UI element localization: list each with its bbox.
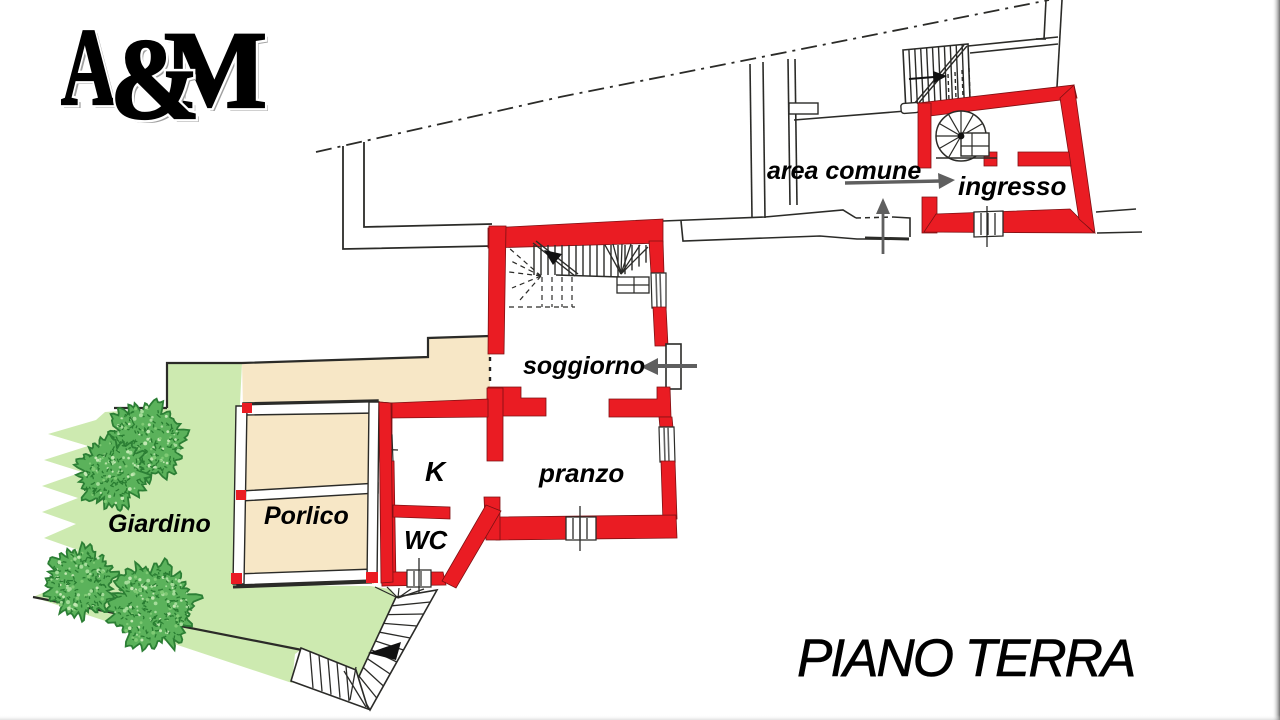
svg-text:K: K — [425, 456, 447, 487]
svg-text:PIANO TERRA: PIANO TERRA — [797, 629, 1134, 688]
svg-text:area comune: area comune — [767, 157, 921, 185]
svg-text:ingresso: ingresso — [958, 171, 1066, 201]
svg-text:WC: WC — [404, 525, 449, 555]
svg-text:soggiorno: soggiorno — [523, 352, 645, 380]
svg-text:Porlico: Porlico — [264, 502, 349, 530]
svg-text:A: A — [61, 6, 116, 128]
svg-text:&: & — [110, 16, 200, 144]
svg-text:Giardino: Giardino — [108, 510, 211, 538]
svg-text:pranzo: pranzo — [538, 458, 624, 488]
